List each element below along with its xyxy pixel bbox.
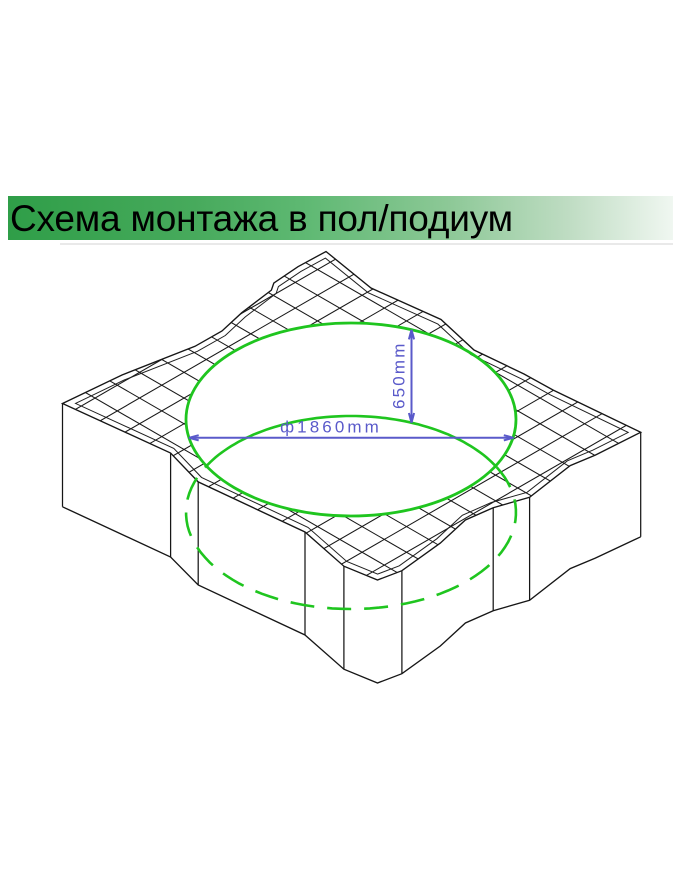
- svg-text:650mm: 650mm: [390, 341, 409, 409]
- svg-text:ф1860mm: ф1860mm: [280, 417, 382, 436]
